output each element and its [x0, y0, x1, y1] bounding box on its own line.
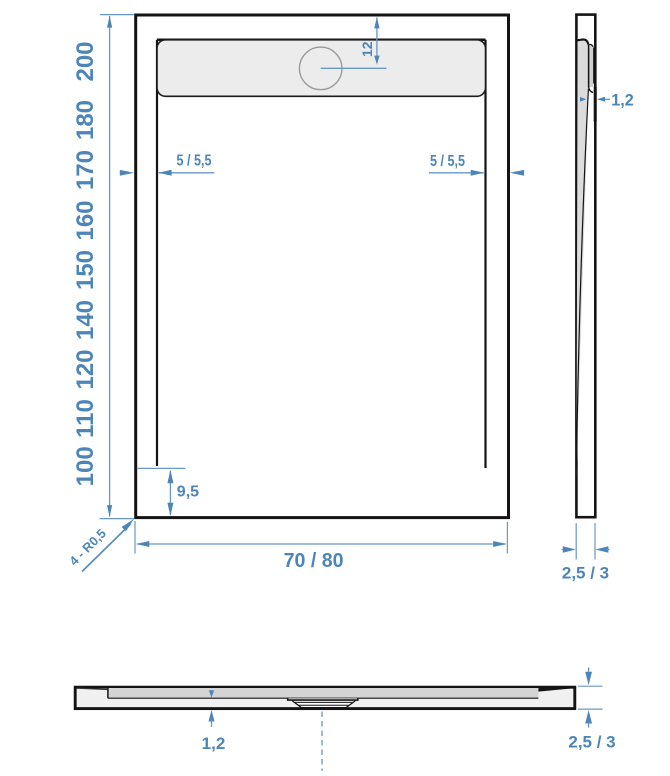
- svg-text:5 / 5,5: 5 / 5,5: [430, 153, 465, 170]
- svg-text:1,2: 1,2: [611, 91, 634, 109]
- svg-text:9,5: 9,5: [177, 484, 199, 501]
- svg-text:200: 200: [72, 41, 99, 81]
- svg-text:70 / 80: 70 / 80: [284, 549, 344, 572]
- svg-text:5 / 5,5: 5 / 5,5: [177, 153, 212, 170]
- svg-text:100: 100: [72, 446, 99, 486]
- svg-text:1,2: 1,2: [202, 734, 226, 753]
- svg-text:110: 110: [72, 399, 99, 438]
- svg-text:120: 120: [72, 349, 99, 389]
- svg-text:150: 150: [72, 250, 99, 290]
- svg-text:170: 170: [72, 150, 99, 190]
- svg-text:12: 12: [359, 41, 375, 57]
- svg-text:180: 180: [72, 100, 99, 140]
- svg-text:2,5 / 3: 2,5 / 3: [568, 733, 615, 752]
- svg-text:140: 140: [72, 300, 99, 340]
- svg-text:160: 160: [72, 200, 99, 240]
- svg-text:2,5 / 3: 2,5 / 3: [562, 563, 609, 582]
